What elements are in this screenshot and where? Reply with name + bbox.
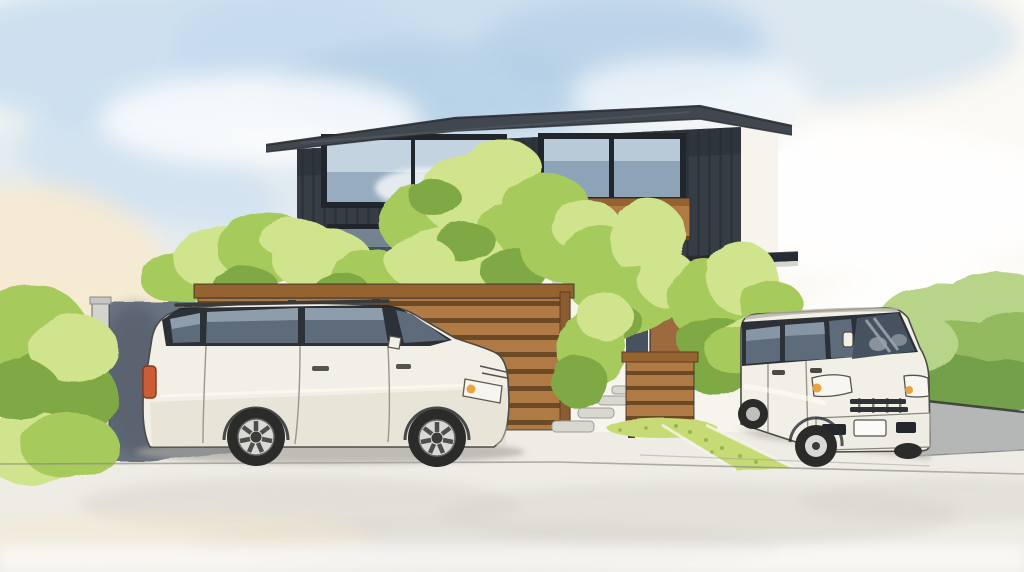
van-door-handle xyxy=(810,368,822,373)
wagon-door-handle xyxy=(396,364,411,369)
wagon-mirror xyxy=(388,336,401,349)
wagon-taillight xyxy=(143,366,156,398)
van-seat xyxy=(869,337,887,351)
illustration-stage xyxy=(0,0,1024,572)
van-seat xyxy=(891,334,907,346)
van-bumper-intake xyxy=(896,422,916,433)
watercolor-illustration xyxy=(0,0,1024,572)
window-mullion xyxy=(609,139,614,197)
van-door-handle xyxy=(772,370,785,375)
van-far-wheel xyxy=(894,443,922,459)
wall-cap xyxy=(90,297,111,304)
wagon-door-handle xyxy=(312,366,329,371)
license-plate xyxy=(854,420,886,436)
van-mirror xyxy=(843,332,853,347)
fence-top-rail xyxy=(194,284,574,298)
gate-top-rail xyxy=(622,352,698,362)
